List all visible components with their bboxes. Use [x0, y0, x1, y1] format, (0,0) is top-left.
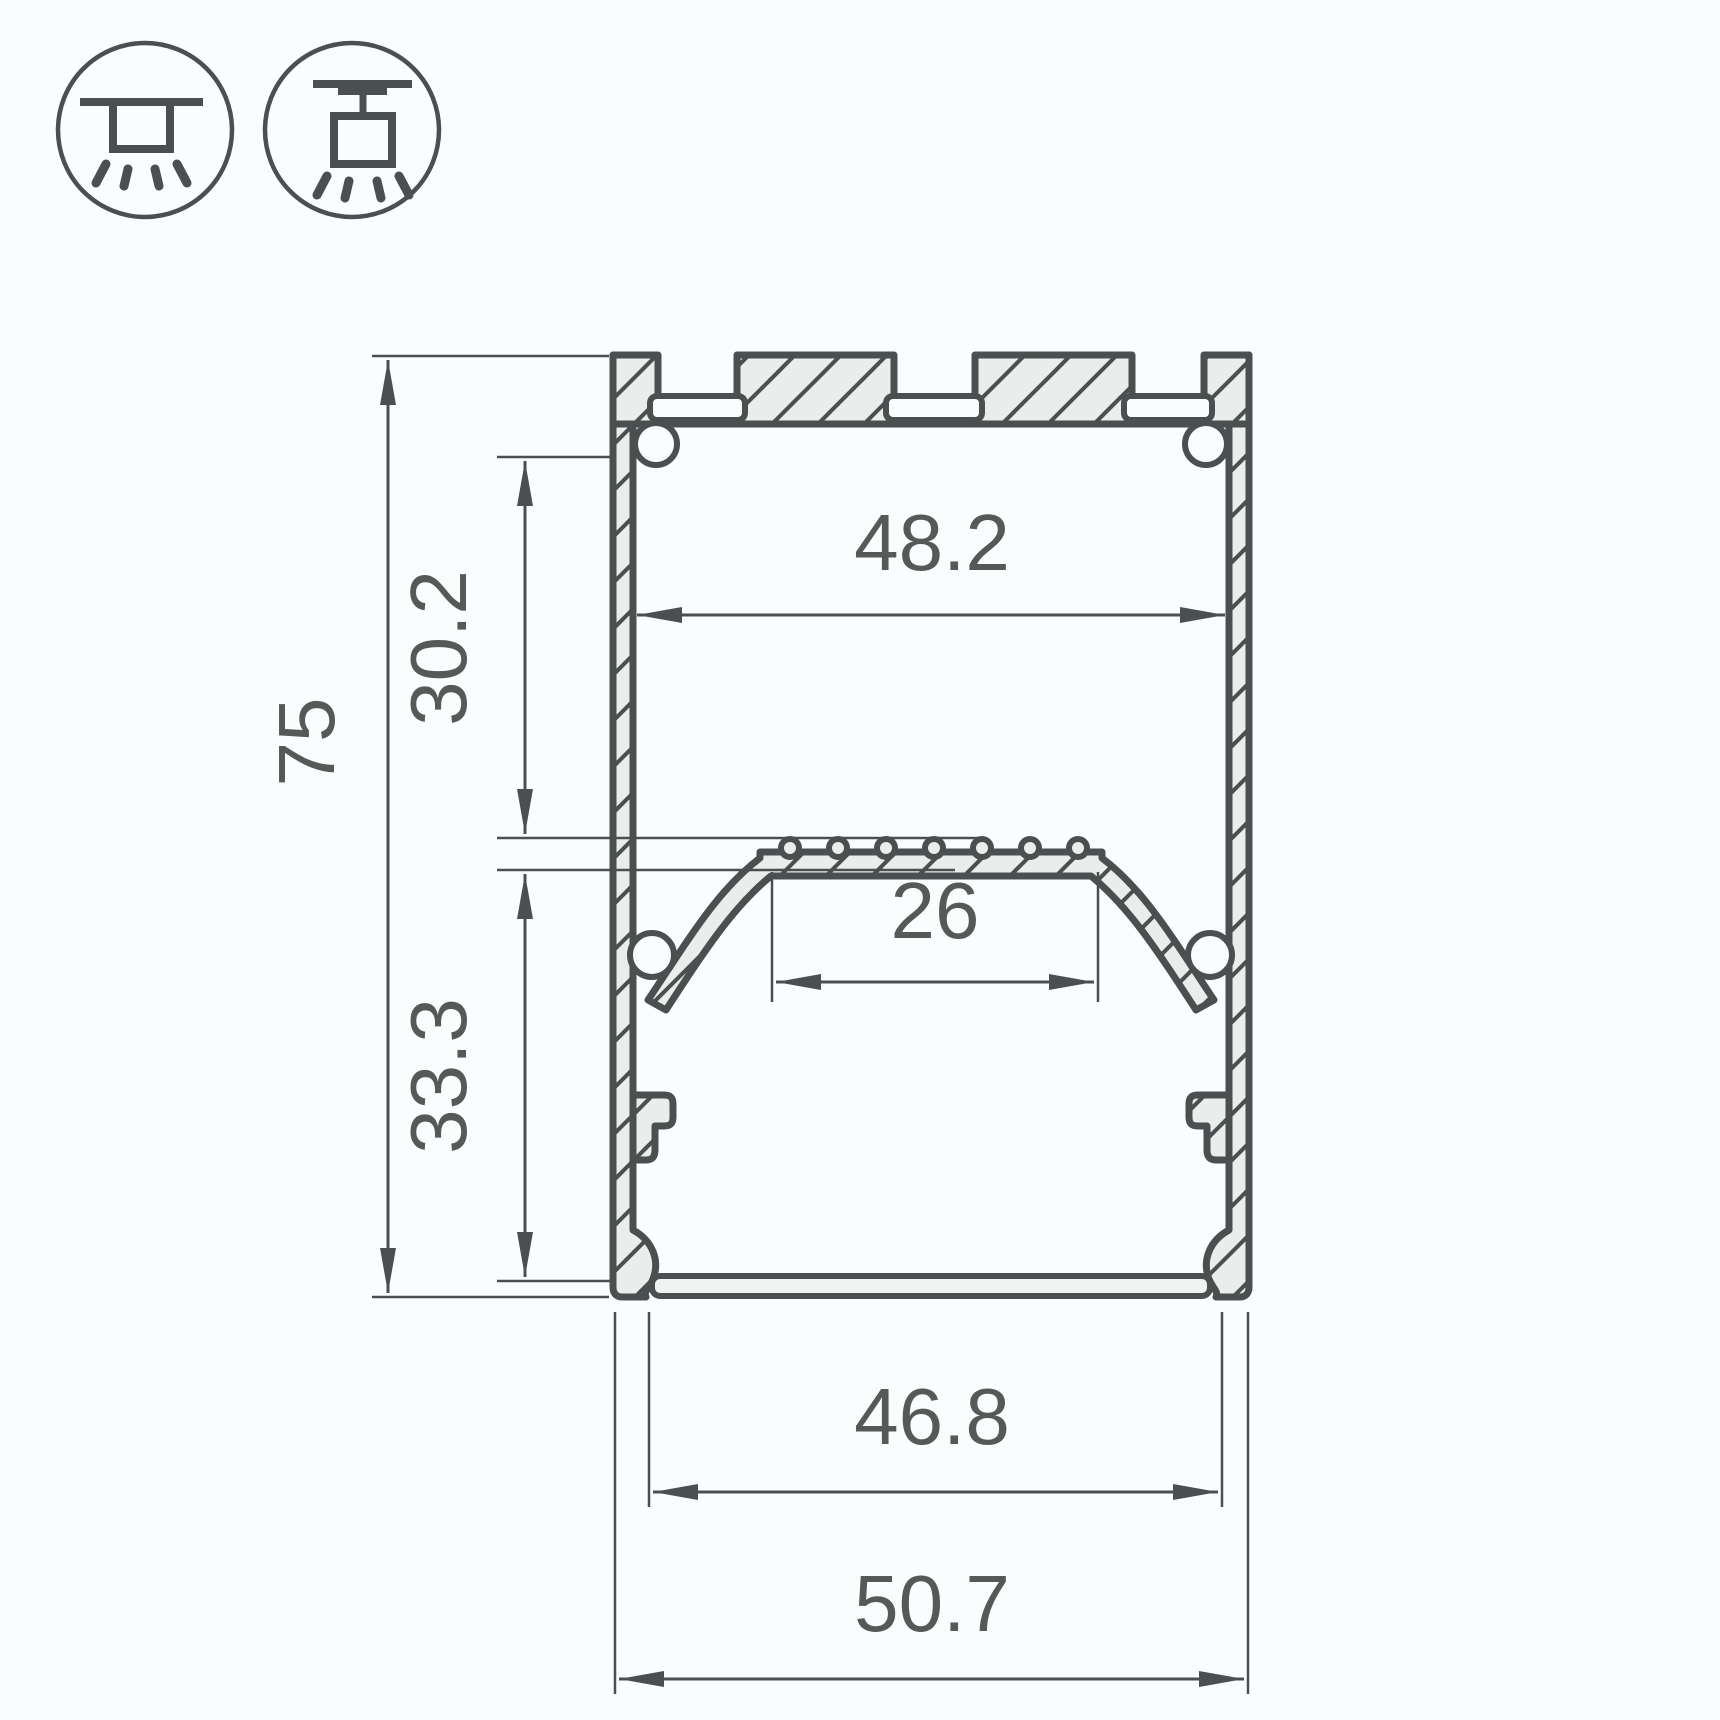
profile-drawing-canvas: 75 30.2 33.3 48.2 26 [0, 0, 1720, 1720]
dim-bottom-inner-width-label: 46.8 [854, 1372, 1010, 1461]
dim-bottom-inner-width: 46.8 [649, 1312, 1222, 1507]
wall-hook-left [633, 1095, 673, 1160]
screw-boss-top-right [1185, 423, 1227, 465]
wall-hook-right [1189, 1095, 1229, 1160]
dim-overall-width: 50.7 [615, 1312, 1248, 1694]
dim-lower-cavity-label: 33.3 [394, 998, 483, 1154]
dim-overall-width-label: 50.7 [854, 1559, 1010, 1648]
dimensions: 75 30.2 33.3 48.2 26 [262, 356, 1248, 1694]
icon-circle [58, 43, 232, 217]
light-rays [96, 164, 187, 186]
suspended-luminaire-icon [265, 43, 439, 217]
screw-boss-top-left [635, 423, 677, 465]
dim-inner-width-label: 48.2 [854, 498, 1010, 587]
dim-inner-width: 48.2 [637, 498, 1225, 615]
dim-lower-cavity-height: 33.3 [394, 870, 955, 1281]
mounting-icons [58, 43, 439, 217]
dim-upper-cavity-label: 30.2 [394, 570, 483, 726]
t-slot-center [886, 396, 982, 420]
luminaire-body [334, 116, 392, 164]
screw-boss-mid-left [630, 933, 674, 977]
icon-circle [265, 43, 439, 217]
t-slot-right [1124, 396, 1212, 420]
dim-overall-height-label: 75 [262, 698, 351, 787]
dim-led-strip-width: 26 [772, 866, 1098, 1002]
t-slot-left [650, 396, 745, 420]
dim-led-strip-width-label: 26 [891, 866, 980, 955]
dim-overall-height: 75 [262, 356, 609, 1297]
luminaire-body [113, 102, 170, 149]
diffuser-cover [652, 1276, 1210, 1296]
surface-mount-luminaire-icon [58, 43, 232, 217]
screw-boss-mid-right [1188, 933, 1232, 977]
light-rays [317, 176, 409, 198]
profile-cross-section [613, 355, 1249, 1297]
